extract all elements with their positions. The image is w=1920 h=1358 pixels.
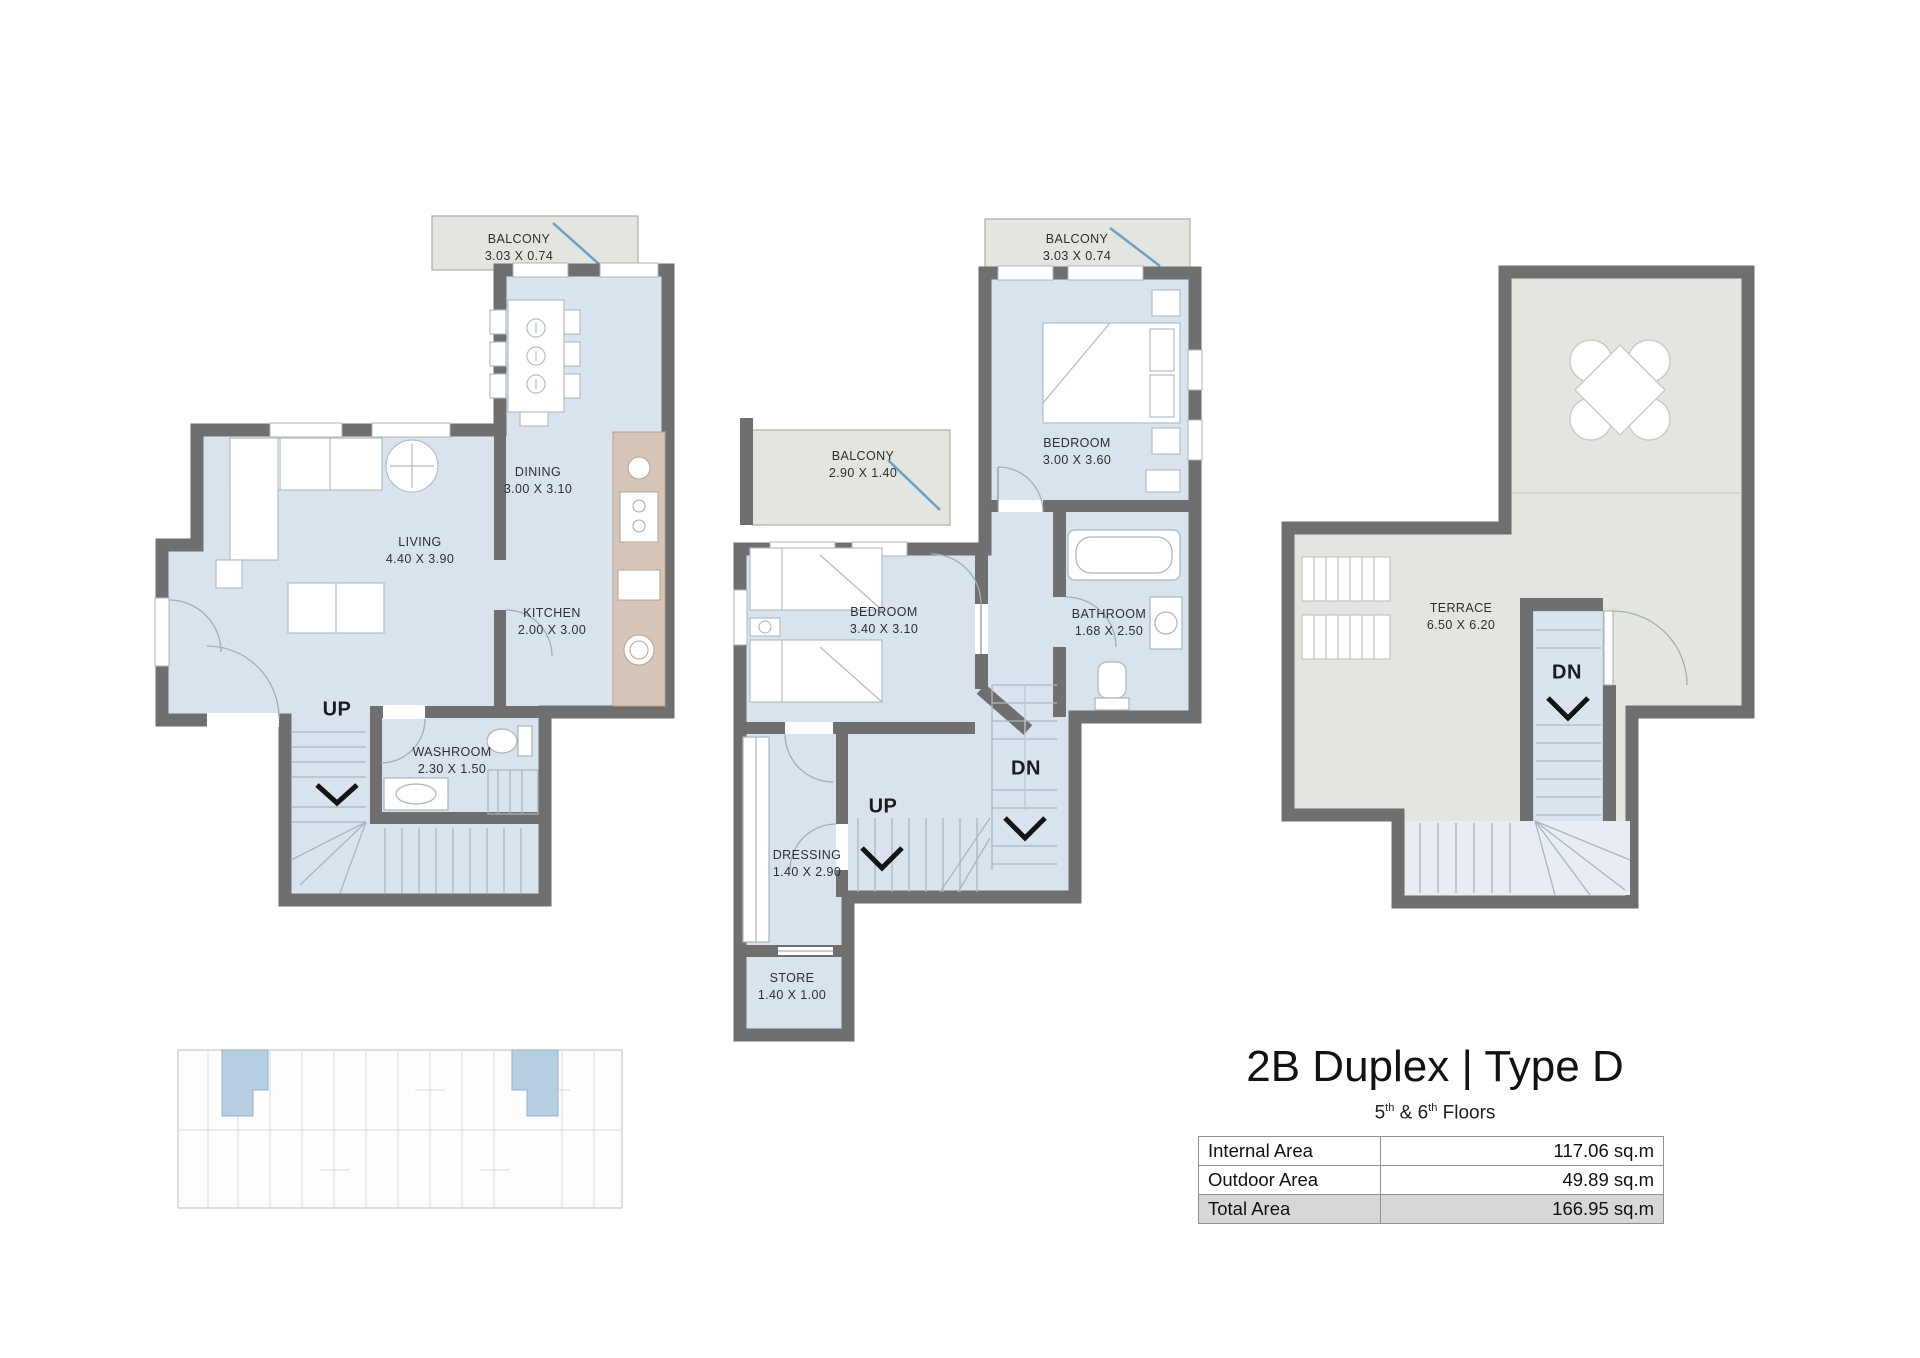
- room-label-washroom: WASHROOM 2.30 X 1.50: [412, 744, 491, 778]
- internal-area-label: Internal Area: [1199, 1137, 1381, 1166]
- room-label-lower-balcony: BALCONY 3.03 X 0.74: [485, 231, 553, 265]
- outdoor-area-value: 49.89 sq.m: [1381, 1166, 1664, 1195]
- nightstand-icon: [1152, 428, 1180, 454]
- floor-plan-sheet: BALCONY 3.03 X 0.74 DINING 3.00 X 3.10 L…: [0, 0, 1920, 1358]
- terrace-table: [1570, 340, 1670, 440]
- area-table: Internal Area 117.06 sq.m Outdoor Area 4…: [1198, 1136, 1664, 1224]
- stairs-up-label-lower: UP: [323, 699, 352, 722]
- room-label-upper-balcony-side: BALCONY 2.90 X 1.40: [829, 448, 897, 482]
- stairs-down-label-upper: DN: [1011, 758, 1041, 781]
- outdoor-area-label: Outdoor Area: [1199, 1166, 1381, 1195]
- toilet-icon: [1098, 662, 1126, 698]
- total-area-value: 166.95 sq.m: [1381, 1195, 1664, 1224]
- terrace-floor-plan: [1280, 265, 1760, 915]
- internal-area-value: 117.06 sq.m: [1381, 1137, 1664, 1166]
- room-label-terrace: TERRACE 6.50 X 6.20: [1427, 600, 1495, 634]
- room-label-living: LIVING 4.40 X 3.90: [386, 534, 454, 568]
- room-label-bedroom-side: BEDROOM 3.40 X 3.10: [850, 604, 918, 638]
- side-table-icon: [216, 560, 242, 588]
- room-label-store: STORE 1.40 X 1.00: [758, 970, 826, 1004]
- stairs-up-label-upper: UP: [869, 796, 898, 819]
- toilet-icon: [518, 726, 532, 756]
- floors-subtitle: 5th & 6th Floors: [1162, 1102, 1708, 1124]
- dresser-icon: [1146, 470, 1180, 492]
- sink-icon: [384, 778, 448, 810]
- stairs-down-label-terrace: DN: [1552, 662, 1582, 685]
- key-plan: [150, 1040, 650, 1275]
- room-label-bedroom-top: BEDROOM 3.00 X 3.60: [1043, 435, 1111, 469]
- stairs-lower-flight: [1405, 821, 1630, 895]
- page-title: 2B Duplex | Type D: [1162, 1042, 1708, 1092]
- room-label-bathroom: BATHROOM 1.68 X 2.50: [1072, 606, 1147, 640]
- wardrobe-icon: [743, 737, 769, 942]
- table-row-total-area: Total Area 166.95 sq.m: [1199, 1195, 1664, 1224]
- nightstand-icon: [1152, 290, 1180, 316]
- room-label-dressing: DRESSING 1.40 X 2.90: [773, 847, 842, 881]
- total-area-label: Total Area: [1199, 1195, 1381, 1224]
- room-label-dining: DINING 3.00 X 3.10: [504, 464, 572, 498]
- table-row-outdoor-area: Outdoor Area 49.89 sq.m: [1199, 1166, 1664, 1195]
- table-row-internal-area: Internal Area 117.06 sq.m: [1199, 1137, 1664, 1166]
- room-label-upper-balcony-top: BALCONY 3.03 X 0.74: [1043, 231, 1111, 265]
- door-leaf: [1604, 611, 1613, 685]
- upper-floor-plan: [590, 170, 1250, 1050]
- room-label-kitchen: KITCHEN 2.00 X 3.00: [518, 605, 586, 639]
